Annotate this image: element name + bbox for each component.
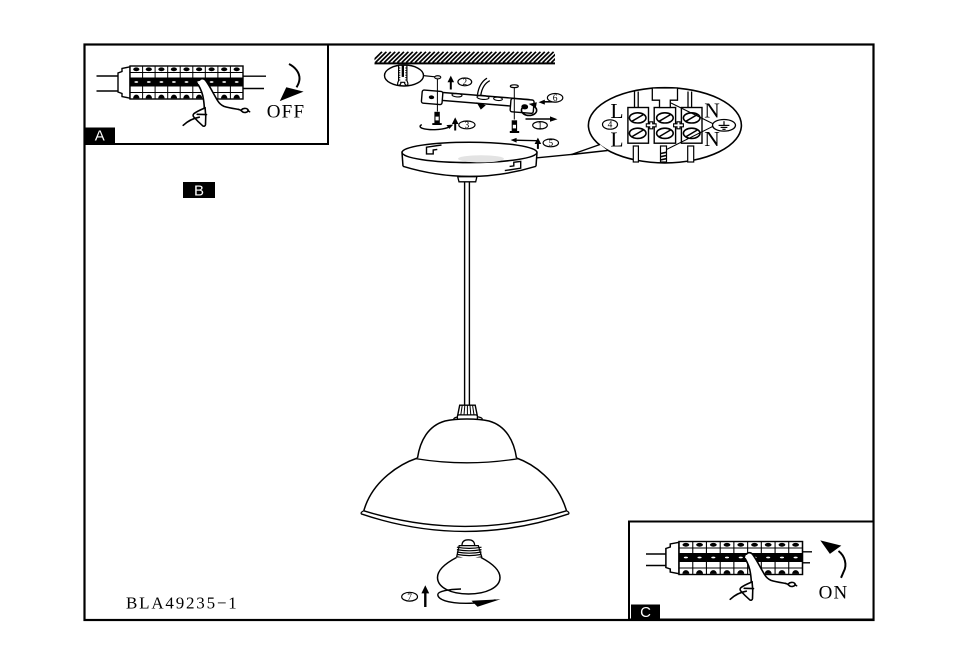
- svg-text:L: L: [610, 128, 623, 152]
- svg-text:5: 5: [548, 139, 553, 149]
- svg-text:C: C: [640, 604, 651, 621]
- svg-text:7: 7: [407, 593, 412, 603]
- svg-text:BLA49235−1: BLA49235−1: [126, 594, 239, 613]
- svg-text:2: 2: [462, 78, 467, 88]
- svg-text:4: 4: [608, 121, 613, 131]
- svg-text:L: L: [610, 99, 623, 123]
- svg-text:B: B: [194, 183, 204, 200]
- svg-text:A: A: [95, 128, 105, 145]
- svg-text:3: 3: [465, 121, 470, 131]
- svg-text:OFF: OFF: [267, 102, 305, 123]
- svg-text:1: 1: [538, 122, 543, 132]
- svg-text:N: N: [704, 127, 720, 151]
- svg-text:N: N: [704, 99, 720, 123]
- svg-text:ON: ON: [819, 583, 849, 604]
- svg-text:6: 6: [553, 94, 558, 104]
